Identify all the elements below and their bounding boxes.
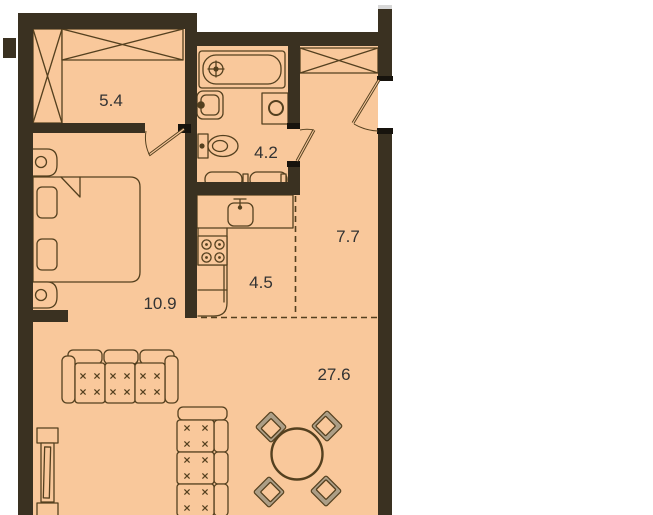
dining-table-icon (272, 429, 323, 480)
wall-bedroom-stub (18, 310, 68, 322)
wall-right-upper (378, 46, 392, 76)
wall-bathroom-bottom (185, 182, 300, 195)
wardrobe-icon-closet-tall (33, 29, 62, 123)
wall-bedroom-kitchen (185, 29, 197, 318)
bathtub-icon (199, 51, 285, 88)
room-area-label-hallway: 7.7 (336, 227, 360, 246)
wall-top-closet (18, 13, 197, 29)
wall-bathroom-right-upper (288, 46, 300, 123)
wall-right-lower (378, 133, 392, 515)
room-area-label-bathroom: 4.2 (254, 143, 278, 162)
wall-closet-bedroom (18, 123, 145, 133)
bathroom-sink-icon (197, 91, 223, 119)
wardrobe-icon-closet-wide (62, 29, 183, 60)
entrance-door-jamb (377, 128, 393, 134)
bathroom-door-jamb (287, 161, 300, 167)
washing-machine-icon (262, 93, 288, 124)
room-area-label-kitchen: 4.5 (249, 273, 273, 292)
wall-stub-outer-left (3, 38, 16, 58)
wall-right-top-stub (378, 9, 392, 32)
floor-plan: 5.4 4.2 7.7 4.5 10.9 27.6 (0, 0, 653, 515)
nightstand-icon-top (32, 149, 57, 176)
sofa-icon-large (62, 350, 178, 403)
kitchen-sink-icon (228, 199, 253, 226)
sofa-icon-small (177, 407, 228, 515)
bathroom-door-jamb (287, 123, 300, 129)
wall-left (18, 13, 33, 515)
wardrobe-icon-hallway (300, 48, 378, 73)
room-area-label-bedroom: 10.9 (143, 294, 176, 313)
nightstand-icon-bottom (32, 282, 57, 308)
wall-top-bath-hall (191, 32, 392, 46)
floor-plan-svg: 5.4 4.2 7.7 4.5 10.9 27.6 (0, 0, 653, 515)
wall-bathroom-right-lower (288, 167, 300, 195)
toilet-icon (198, 134, 238, 158)
room-area-label-closet: 5.4 (99, 91, 123, 110)
bed-icon (33, 177, 140, 282)
room-area-label-living-room: 27.6 (317, 365, 350, 384)
stove-icon (198, 236, 227, 265)
